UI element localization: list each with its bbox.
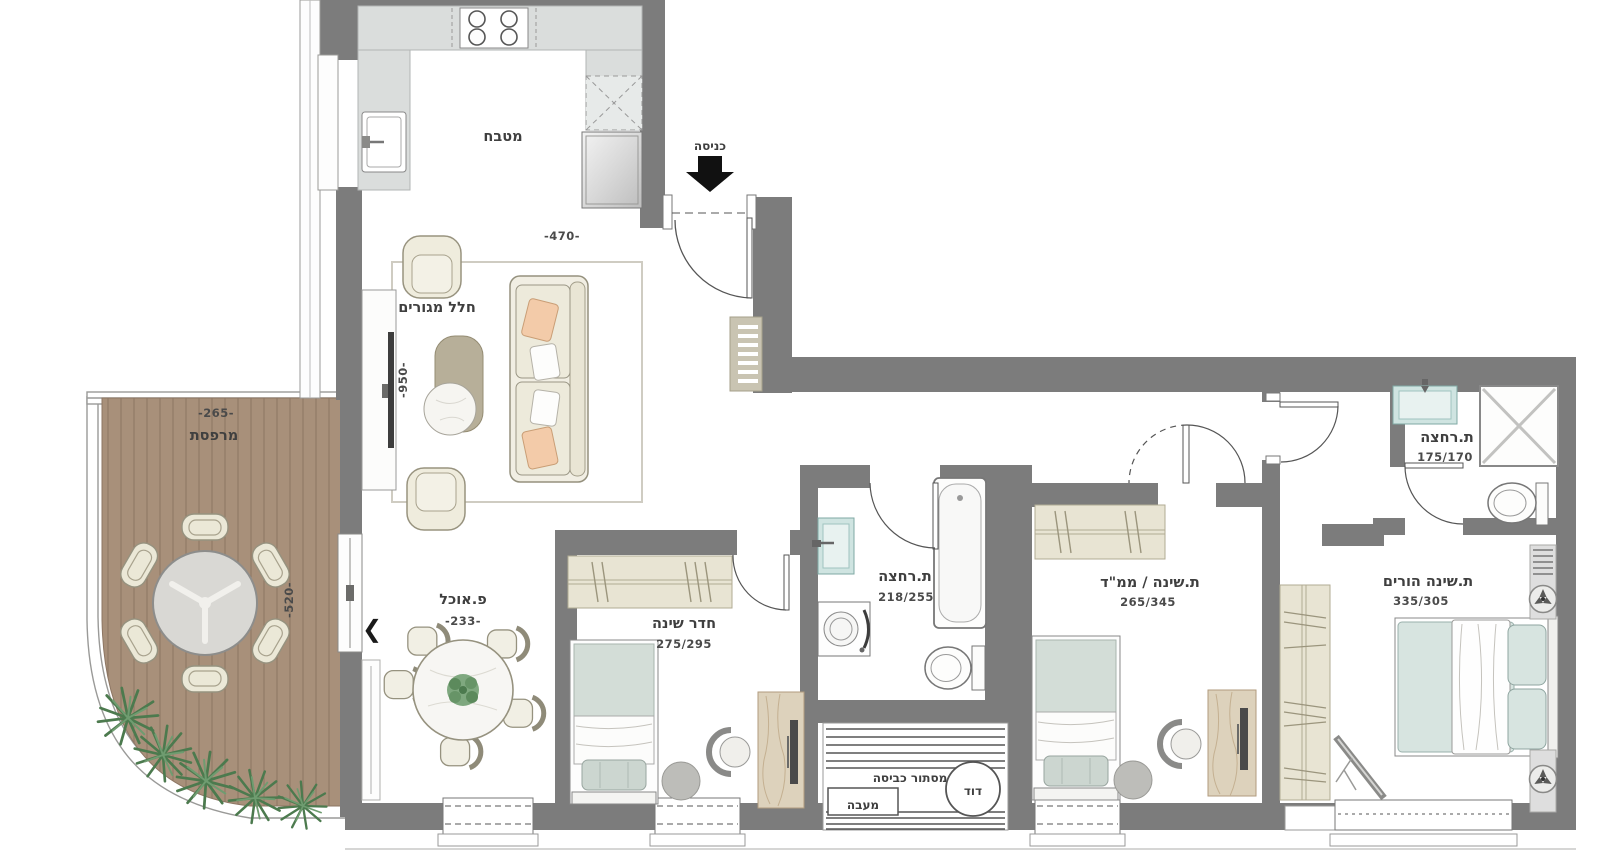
living-dim-height: -950- <box>396 362 410 398</box>
living-label: חלל מגורים <box>398 300 476 316</box>
bed-double <box>1395 616 1558 758</box>
door-mamad <box>1129 425 1245 483</box>
toilet-icon-2 <box>1488 483 1548 525</box>
window-bedroom1 <box>650 798 745 846</box>
boiler-label: דוד <box>964 784 982 798</box>
bedroom1-label: חדר שינה <box>652 616 716 632</box>
balcony-dim-width: -265- <box>198 406 234 420</box>
dining-label: פ.אוכל <box>439 592 487 608</box>
pouf-1 <box>662 762 700 800</box>
tv-icon <box>388 332 394 448</box>
entrance <box>663 156 756 298</box>
stove-icon <box>452 8 536 48</box>
table-plant-icon <box>447 674 479 706</box>
window-master <box>1285 800 1517 846</box>
monitor-icon <box>790 720 798 784</box>
entrance-label: כניסה <box>694 139 726 153</box>
master-dim: 335/305 <box>1393 594 1449 608</box>
bathroom-label: ת.רחצה <box>878 569 932 585</box>
bathroom-dim: 218/255 <box>878 590 934 604</box>
laundry-label: מסתור כביסה <box>873 771 948 785</box>
bed-single-1 <box>570 640 658 804</box>
kitchen-label: מטבח <box>483 129 522 145</box>
closet-bedroom1 <box>568 556 732 608</box>
bathtub-icon <box>934 478 986 628</box>
floor-plan: מטבח כניסה -470- חלל מגורים -950- -265- … <box>0 0 1600 852</box>
desk-mamad <box>1208 690 1256 796</box>
master-bath-dim: 175/170 <box>1417 450 1473 464</box>
armchair-bottom <box>407 468 465 530</box>
standing-mirror <box>1336 737 1384 798</box>
washing-machine-icon <box>818 602 870 656</box>
living-dim-width: -470- <box>544 229 580 243</box>
armchair-top <box>403 236 461 298</box>
ac-niche-top <box>1530 545 1557 619</box>
cabinet-x-icon <box>586 76 642 130</box>
window-dining <box>438 798 538 846</box>
sofa <box>510 276 588 482</box>
mamad-label: ת.שינה / ממ"ד <box>1100 575 1200 591</box>
shoe-cabinet <box>730 317 762 391</box>
pouf-2 <box>1114 761 1152 799</box>
bedroom1 <box>568 555 804 808</box>
condenser-label: מעבה <box>847 798 879 812</box>
wardrobe-master <box>1280 585 1330 800</box>
door-bathroom-middle <box>870 483 938 549</box>
door-bedroom1 <box>733 555 789 610</box>
monitor-icon-2 <box>1240 708 1248 770</box>
coffee-table <box>424 336 483 435</box>
shower-icon <box>1480 386 1558 466</box>
desk-bedroom1 <box>758 692 804 808</box>
bedroom1-dim: 275/295 <box>656 637 712 651</box>
balcony-dim-height: -520- <box>282 582 296 618</box>
toilet-icon-1 <box>925 646 985 690</box>
window-mamad <box>1030 798 1125 846</box>
dining-area <box>384 625 544 768</box>
desk-chair-1 <box>709 730 750 774</box>
dining-dim: -233- <box>445 614 481 628</box>
bath2-sink-icon <box>1393 379 1457 424</box>
bath-sink-icon <box>812 518 854 574</box>
mamad-dim: 265/345 <box>1120 595 1176 609</box>
kitchen <box>358 6 642 208</box>
closet-mamad <box>1035 505 1165 559</box>
balcony-label: מרפסת <box>190 428 239 444</box>
front-glazing <box>300 0 338 398</box>
mamad-bedroom <box>1032 425 1256 800</box>
kitchen-sink-icon <box>362 112 406 172</box>
door-master-lobby <box>1266 393 1338 464</box>
ac-niche-bottom <box>1530 750 1557 812</box>
fan-icon-bottom <box>1530 766 1557 793</box>
entry-arrow-icon <box>686 156 734 192</box>
master-label: ת.שינה הורים <box>1383 574 1473 590</box>
master-bath-label: ת.רחצה <box>1420 430 1474 446</box>
fan-icon-top <box>1530 586 1557 613</box>
bed-single-2 <box>1032 636 1120 800</box>
desk-chair-2 <box>1160 722 1201 766</box>
door-master-bathroom <box>1405 463 1463 524</box>
tv-unit <box>362 290 396 490</box>
fridge-icon <box>582 132 642 208</box>
slider-arrow-icon: ❮ <box>362 615 382 643</box>
